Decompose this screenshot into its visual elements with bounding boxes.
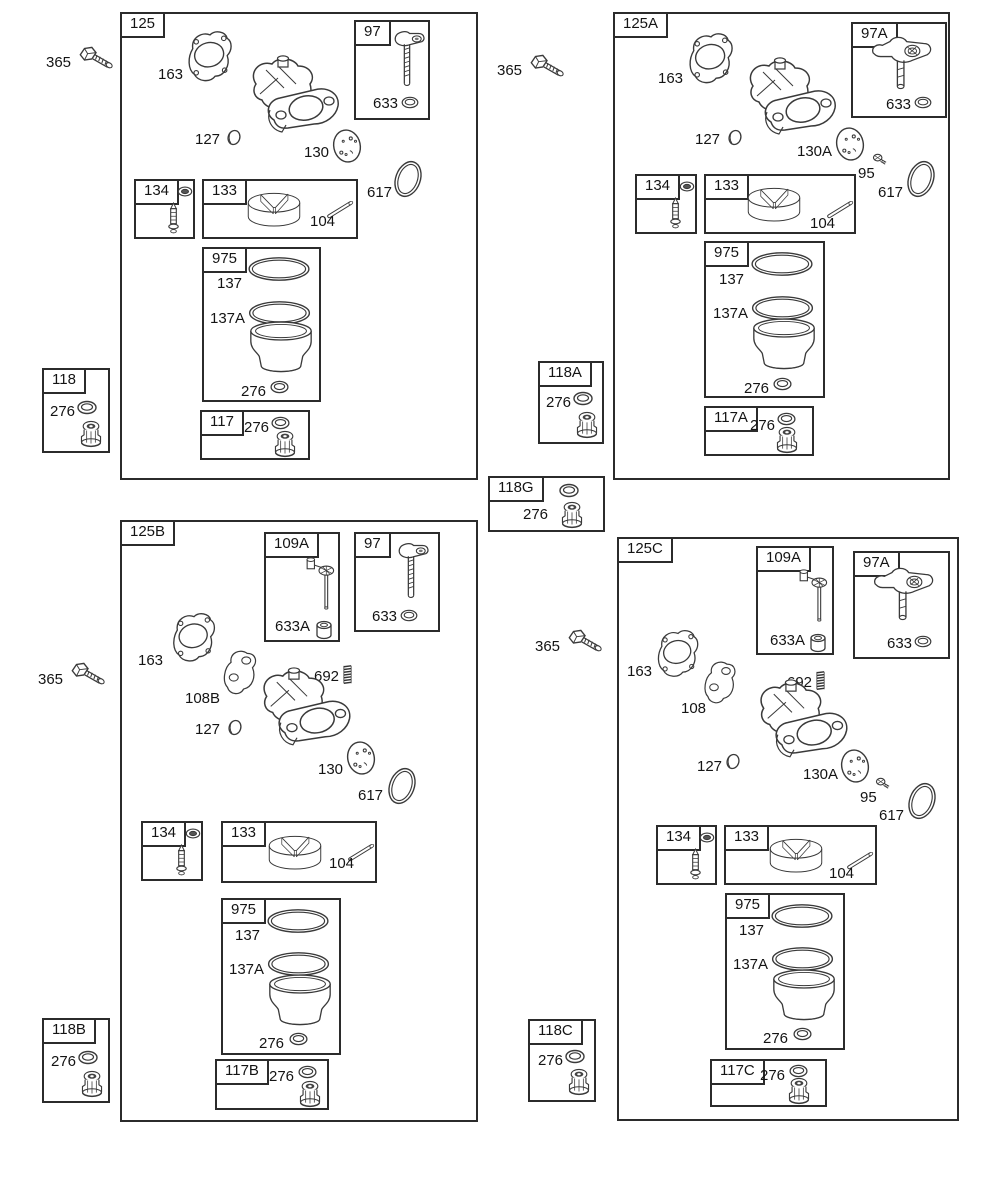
box-117B-title: 117B (215, 1059, 269, 1085)
group-125C-box-134: 134 (656, 825, 717, 885)
group-125-box-97: 97 633 (354, 20, 430, 120)
float-needle-drawing (174, 843, 189, 879)
washer-drawing (792, 1027, 813, 1041)
gasket-drawing (653, 627, 703, 685)
callout-276: 276 (259, 1035, 284, 1053)
group-125-box-134: 134 (134, 179, 195, 239)
group-125B-box-97: 97 633 (354, 532, 440, 632)
kit-118G-box: 118G 276 (488, 476, 605, 532)
box-133-title: 133 (202, 179, 247, 205)
group-125A-box-975: 975 137 137A 276 (704, 241, 825, 398)
box-133-title: 133 (724, 825, 769, 851)
box-975-title: 975 (725, 893, 770, 919)
seal-drawing (226, 128, 242, 147)
callout-276: 276 (244, 419, 269, 437)
throttle-plate-drawing (833, 124, 867, 164)
group-125C-title: 125C (617, 537, 673, 563)
callout-276: 276 (51, 1053, 76, 1071)
callout-163: 163 (158, 66, 183, 84)
box-97-title: 97 (354, 532, 391, 558)
washer-drawing (572, 391, 594, 406)
fuel-bowl-drawing (267, 972, 333, 1030)
washer-drawing (269, 380, 290, 394)
washer-drawing (558, 483, 580, 498)
callout-130: 130 (304, 144, 329, 162)
callout-137A: 137A (733, 956, 768, 974)
group-125B-box: 125B 109A 633A 97 633 163 108B 692 127 1… (120, 520, 478, 1122)
callout-365-top-left: 365 (46, 54, 71, 72)
screw-drawing (875, 776, 892, 791)
group-125C-box-109A: 109A 633A (756, 546, 834, 655)
callout-617: 617 (878, 184, 903, 202)
callout-95: 95 (860, 789, 877, 807)
callout-633A: 633A (275, 618, 310, 636)
needle-seat-drawing (185, 828, 201, 839)
callout-633: 633 (886, 96, 911, 114)
washer-drawing (913, 96, 933, 109)
box-975-title: 975 (221, 898, 266, 924)
throttle-shaft-drawing (384, 30, 430, 94)
group-125A-box-134: 134 (635, 174, 697, 234)
bowl-gasket-drawing (265, 907, 331, 935)
needle-seat-drawing (679, 181, 695, 192)
callout-617: 617 (879, 807, 904, 825)
callout-633: 633 (887, 635, 912, 653)
group-125A-box-133: 133 104 (704, 174, 856, 234)
washer-drawing (297, 1065, 318, 1079)
gasket-drawing (168, 610, 220, 670)
group-125-box: 125 163 127 97 633 130 617 134 133 104 9… (120, 12, 478, 480)
callout-137A: 137A (713, 305, 748, 323)
throttle-shaft-drawing (388, 542, 434, 606)
fuel-bowl-drawing (771, 967, 837, 1025)
group-125-title: 125 (120, 12, 165, 38)
washer-drawing (913, 635, 933, 648)
carburetor-body-drawing (236, 666, 358, 762)
kit-118C-box: 118C 276 (528, 1019, 596, 1102)
callout-137A: 137A (210, 310, 245, 328)
washer-drawing (400, 96, 420, 109)
callout-365-top-mid: 365 (497, 62, 522, 80)
callout-130: 130 (318, 761, 343, 779)
float-needle-drawing (166, 201, 181, 237)
bowl-nut-drawing (79, 1068, 105, 1100)
group-125A-box: 125A 163 127 97A 633 130A 95 617 134 133… (613, 12, 950, 480)
float-drawing (764, 829, 828, 881)
callout-163: 163 (627, 663, 652, 681)
callout-633: 633 (373, 95, 398, 113)
callout-276: 276 (760, 1067, 785, 1085)
washer-drawing (772, 377, 793, 391)
washer-drawing (288, 1032, 309, 1046)
group-125C-box-133: 133 104 (724, 825, 877, 885)
float-drawing (742, 178, 806, 230)
callout-137: 137 (217, 275, 242, 293)
callout-365-mid-center: 365 (535, 638, 560, 656)
bowl-gasket-drawing (246, 255, 312, 283)
group-125-box-117: 117 276 (200, 410, 310, 460)
kit-118C-title: 118C (528, 1019, 583, 1045)
kit-118-title: 118 (42, 368, 86, 394)
bolt-drawing-mid-center (563, 627, 605, 659)
needle-seat-drawing (177, 186, 193, 197)
callout-104: 104 (810, 215, 835, 233)
callout-276: 276 (241, 383, 266, 401)
throttle-plate-drawing (344, 738, 378, 778)
callout-108: 108 (681, 700, 706, 718)
callout-127: 127 (195, 131, 220, 149)
throttle-plate-drawing (838, 746, 872, 786)
oring-drawing (905, 158, 937, 200)
callout-127: 127 (695, 131, 720, 149)
callout-276: 276 (750, 417, 775, 435)
callout-130A: 130A (797, 143, 832, 161)
callout-617: 617 (367, 184, 392, 202)
bowl-nut-drawing (774, 424, 800, 456)
callout-137: 137 (719, 271, 744, 289)
group-125C-box-117C: 117C 276 (710, 1059, 827, 1107)
group-125A-title: 125A (613, 12, 668, 38)
parts-diagram-page: 365 365 365 365 125 163 127 97 633 130 6… (0, 0, 1005, 1200)
choke-shaft-drawing (869, 567, 941, 625)
float-needle-drawing (688, 847, 703, 883)
kit-118B-box: 118B 276 (42, 1018, 110, 1103)
bowl-gasket-drawing (769, 902, 835, 930)
group-125B-box-109A: 109A 633A (264, 532, 340, 642)
callout-104: 104 (329, 855, 354, 873)
washer-drawing (77, 1050, 99, 1065)
bowl-nut-drawing (297, 1078, 323, 1110)
group-125B-box-117B: 117B 276 (215, 1059, 329, 1110)
callout-95: 95 (858, 165, 875, 183)
callout-633A: 633A (770, 632, 805, 650)
seal-drawing (725, 752, 741, 771)
washer-drawing (76, 400, 98, 415)
callout-276: 276 (763, 1030, 788, 1048)
carburetor-body-drawing (733, 678, 855, 774)
callout-127: 127 (697, 758, 722, 776)
seal-drawing (227, 718, 243, 737)
kit-118-box: 118 276 (42, 368, 110, 453)
idle-needle-drawing (296, 556, 342, 618)
bowl-nut-drawing (786, 1075, 812, 1107)
callout-163: 163 (138, 652, 163, 670)
bowl-nut-drawing (574, 409, 600, 441)
callout-276: 276 (744, 380, 769, 398)
kit-118A-box: 118A 276 (538, 361, 604, 444)
washer-drawing (399, 609, 419, 622)
callout-633: 633 (372, 608, 397, 626)
box-117C-title: 117C (710, 1059, 765, 1085)
needle-seat-drawing (699, 832, 715, 843)
seal-drawing (727, 128, 743, 147)
bowl-nut-drawing (78, 418, 104, 450)
group-125C-box: 125C 109A 633A 97A 633 163 108 692 127 1… (617, 537, 959, 1121)
oring-drawing (386, 765, 418, 807)
callout-130A: 130A (803, 766, 838, 784)
callout-276: 276 (523, 506, 548, 524)
bolt-drawing-top-left (74, 44, 116, 76)
float-needle-drawing (668, 196, 683, 232)
callout-108B: 108B (185, 690, 220, 708)
callout-276: 276 (269, 1068, 294, 1086)
callout-163: 163 (658, 70, 683, 88)
group-125C-box-975: 975 137 137A 276 (725, 893, 845, 1050)
group-125A-box-97A: 97A 633 (851, 22, 947, 118)
bolt-drawing-top-mid (525, 52, 567, 84)
oring-drawing (906, 780, 938, 822)
bowl-nut-drawing (566, 1066, 592, 1098)
callout-104: 104 (310, 213, 335, 231)
callout-365-mid-left: 365 (38, 671, 63, 689)
callout-276: 276 (546, 394, 571, 412)
box-109A-title: 109A (264, 532, 319, 558)
callout-276: 276 (50, 403, 75, 421)
bowl-nut-drawing (559, 499, 585, 531)
fuel-bowl-drawing (751, 316, 817, 374)
bowl-nut-drawing (272, 428, 298, 460)
group-125B-title: 125B (120, 520, 175, 546)
box-133-title: 133 (221, 821, 266, 847)
callout-137: 137 (235, 927, 260, 945)
kit-118A-title: 118A (538, 361, 592, 387)
bowl-gasket-drawing (749, 250, 815, 278)
bolt-drawing-mid-left (66, 660, 108, 692)
callout-276: 276 (538, 1052, 563, 1070)
callout-104: 104 (829, 865, 854, 883)
group-125A-box-117A: 117A 276 (704, 406, 814, 456)
box-975-title: 975 (704, 241, 749, 267)
oring-drawing (392, 158, 424, 200)
bushing-drawing (808, 632, 828, 654)
washer-drawing (564, 1049, 586, 1064)
idle-needle-drawing (789, 568, 835, 630)
box-975-title: 975 (202, 247, 247, 273)
kit-118G-title: 118G (488, 476, 544, 502)
group-125B-box-133: 133 104 (221, 821, 377, 883)
group-125-box-975: 975 137 137A 276 (202, 247, 321, 402)
choke-shaft-drawing (867, 36, 939, 94)
throttle-plate-drawing (330, 126, 364, 166)
group-125B-box-975: 975 137 137A 276 (221, 898, 341, 1055)
callout-137: 137 (739, 922, 764, 940)
callout-137A: 137A (229, 961, 264, 979)
carburetor-body-drawing (226, 54, 346, 149)
float-drawing (242, 183, 306, 235)
float-drawing (263, 826, 327, 878)
group-125C-box-97A: 97A 633 (853, 551, 950, 659)
callout-617: 617 (358, 787, 383, 805)
kit-118B-title: 118B (42, 1018, 96, 1044)
box-117-title: 117 (200, 410, 244, 436)
callout-127: 127 (195, 721, 220, 739)
group-125B-box-134: 134 (141, 821, 203, 881)
group-125-box-133: 133 104 (202, 179, 358, 239)
fuel-bowl-drawing (248, 319, 314, 377)
bushing-drawing (314, 619, 334, 641)
